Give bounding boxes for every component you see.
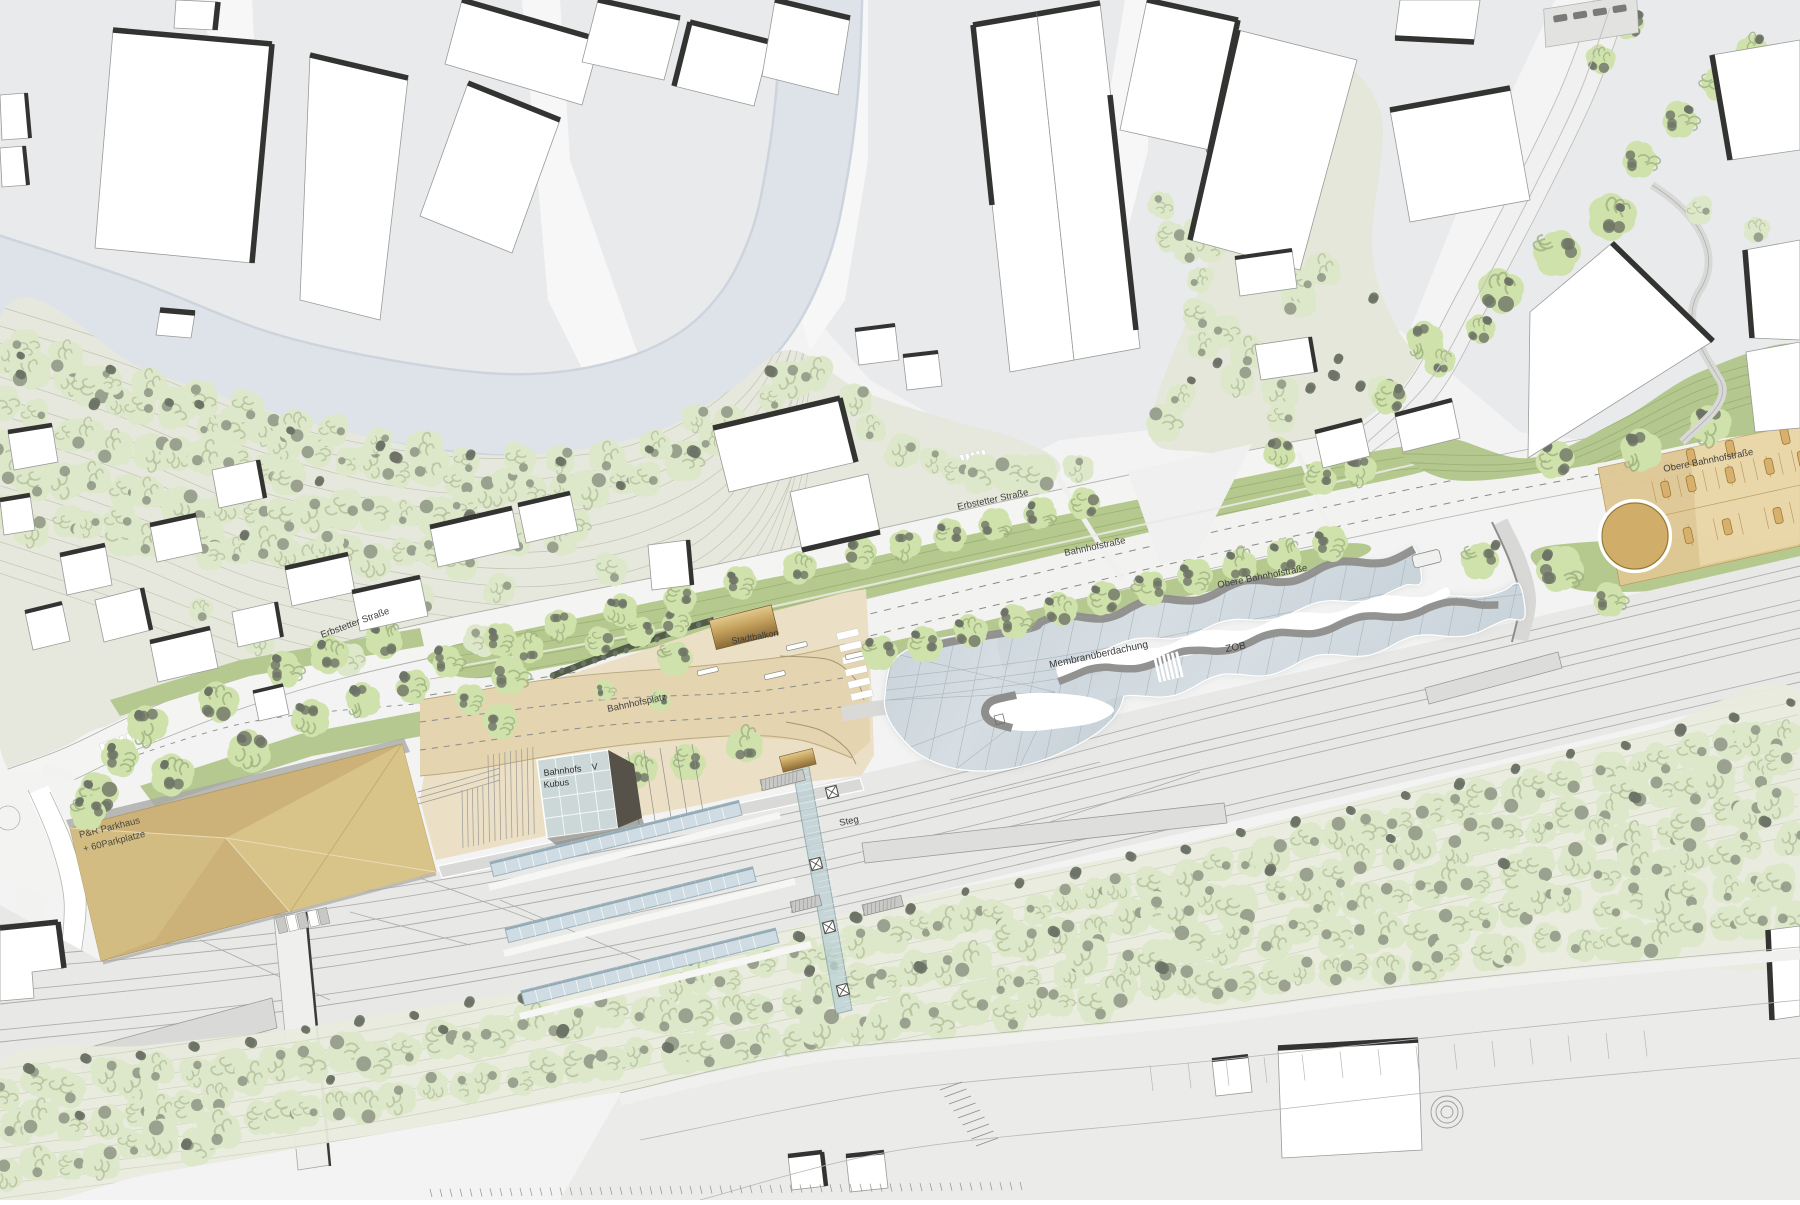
svg-text:V: V: [591, 761, 598, 772]
